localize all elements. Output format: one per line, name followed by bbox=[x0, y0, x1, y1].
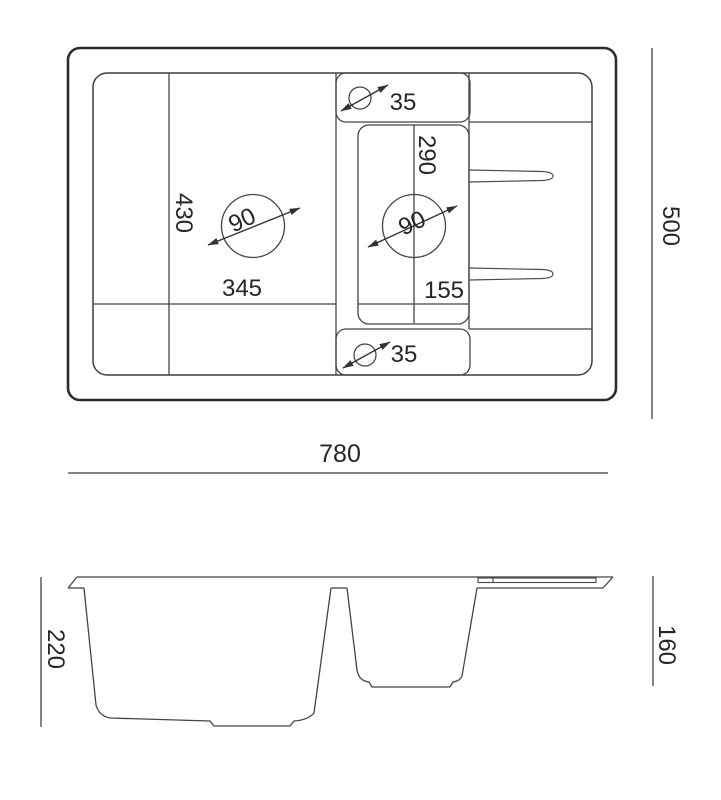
main-bowl-drain-label: 90 bbox=[224, 203, 260, 239]
tap-hole-top-label: 35 bbox=[390, 89, 417, 116]
rim-left-bevel bbox=[68, 577, 77, 588]
main-bowl-depth-label: 430 bbox=[170, 193, 197, 233]
drainer-groove-bottom bbox=[469, 268, 553, 280]
tap-hole-bottom-label: 35 bbox=[391, 341, 418, 368]
main-bowl-width-label: 345 bbox=[222, 275, 262, 302]
small-bowl-height-label: 160 bbox=[653, 625, 680, 665]
small-bowl-width-label: 155 bbox=[424, 277, 464, 304]
tap-hole-top-circle bbox=[349, 87, 371, 109]
side-view: 220 160 bbox=[41, 576, 680, 727]
sink-technical-drawing: 90 90 35 35 430 345 290 155 500 780 bbox=[0, 0, 721, 800]
drawing-svg: 90 90 35 35 430 345 290 155 500 780 bbox=[0, 0, 721, 800]
overall-depth-label: 500 bbox=[657, 206, 684, 246]
tap-hole-bottom-diameter-line bbox=[343, 342, 390, 368]
drainboard-lip bbox=[478, 578, 596, 583]
top-view: 90 90 35 35 430 345 290 155 500 780 bbox=[68, 48, 684, 473]
overall-width-label: 780 bbox=[319, 440, 361, 468]
tap-hole-bottom-circle bbox=[354, 344, 376, 366]
small-bowl-drain-label: 90 bbox=[394, 206, 430, 242]
rim-right-bevel bbox=[603, 577, 613, 588]
small-bowl-depth-label: 290 bbox=[413, 135, 440, 175]
sink-outer-edge bbox=[68, 48, 616, 400]
tap-hole-top-diameter-line bbox=[341, 85, 388, 111]
main-bowl-height-label: 220 bbox=[42, 629, 69, 669]
main-bowl-section-outline bbox=[84, 588, 331, 726]
drainer-groove-top bbox=[469, 170, 553, 182]
small-bowl-section-outline bbox=[347, 588, 477, 687]
